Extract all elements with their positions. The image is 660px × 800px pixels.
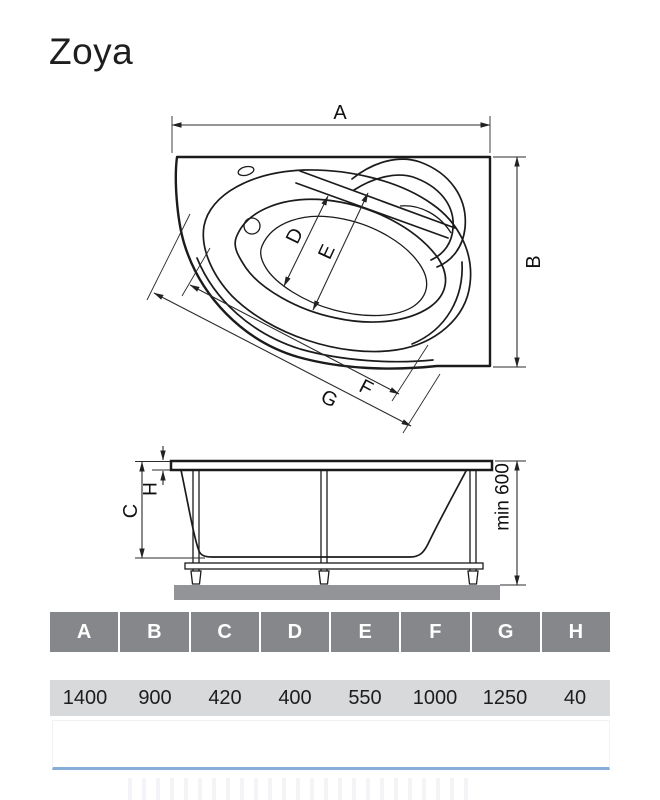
bathtub-top-view-drawing: A B D E F G (120, 100, 560, 445)
table-value-cell-e: 550 (330, 680, 400, 716)
table-header-cell-g: G (472, 612, 540, 652)
bathtub-side-view-drawing: H C min 600 (118, 440, 543, 608)
spec-sheet-page: Zoya (0, 0, 660, 800)
table-header-cell-h: H (542, 612, 610, 652)
tub-body-side (181, 470, 466, 557)
table-header-cell-e: E (331, 612, 399, 652)
dim-label-e: E (314, 241, 340, 262)
foot (468, 571, 478, 584)
dim-label-g: G (317, 386, 341, 413)
accent-underline-box (52, 720, 610, 770)
overflow-hole (237, 165, 255, 177)
dim-label-a: A (333, 102, 347, 124)
table-header-cell-c: C (191, 612, 259, 652)
table-value-cell-h: 40 (540, 680, 610, 716)
drain-and-overflow (237, 165, 260, 234)
table-value-cell-a: 1400 (50, 680, 120, 716)
table-value-cell-b: 900 (120, 680, 190, 716)
table-header-cell-f: F (401, 612, 469, 652)
table-value-cell-c: 420 (190, 680, 260, 716)
table-header-cell-b: B (120, 612, 188, 652)
dim-label-f: F (356, 375, 377, 400)
table-header-cell-a: A (50, 612, 118, 652)
table-value-cell-d: 400 (260, 680, 330, 716)
dim-label-min-600: min 600 (493, 463, 514, 531)
support-frame (185, 470, 483, 584)
tub-rim-side (171, 461, 492, 470)
table-value-cell-g: 1250 (470, 680, 540, 716)
foot (319, 571, 329, 584)
foot (191, 571, 201, 584)
table-value-cell-f: 1000 (400, 680, 470, 716)
dim-label-h: H (141, 482, 162, 496)
table-header-cell-d: D (261, 612, 329, 652)
watermark-ghost (128, 778, 473, 800)
ground (174, 585, 500, 600)
dimensions-table-header-row: A B C D E F G H (50, 612, 610, 652)
page-title: Zoya (49, 33, 133, 72)
dimensions-table: A B C D E F G H 1400 900 420 400 550 100… (50, 612, 610, 716)
drain-hole (244, 218, 260, 234)
dim-label-b: B (523, 255, 545, 268)
dimensions-table-value-row: 1400 900 420 400 550 1000 1250 40 (50, 680, 610, 716)
dim-label-c: C (120, 504, 142, 518)
dimension-lines-top-view: A B D E F G (147, 102, 545, 433)
